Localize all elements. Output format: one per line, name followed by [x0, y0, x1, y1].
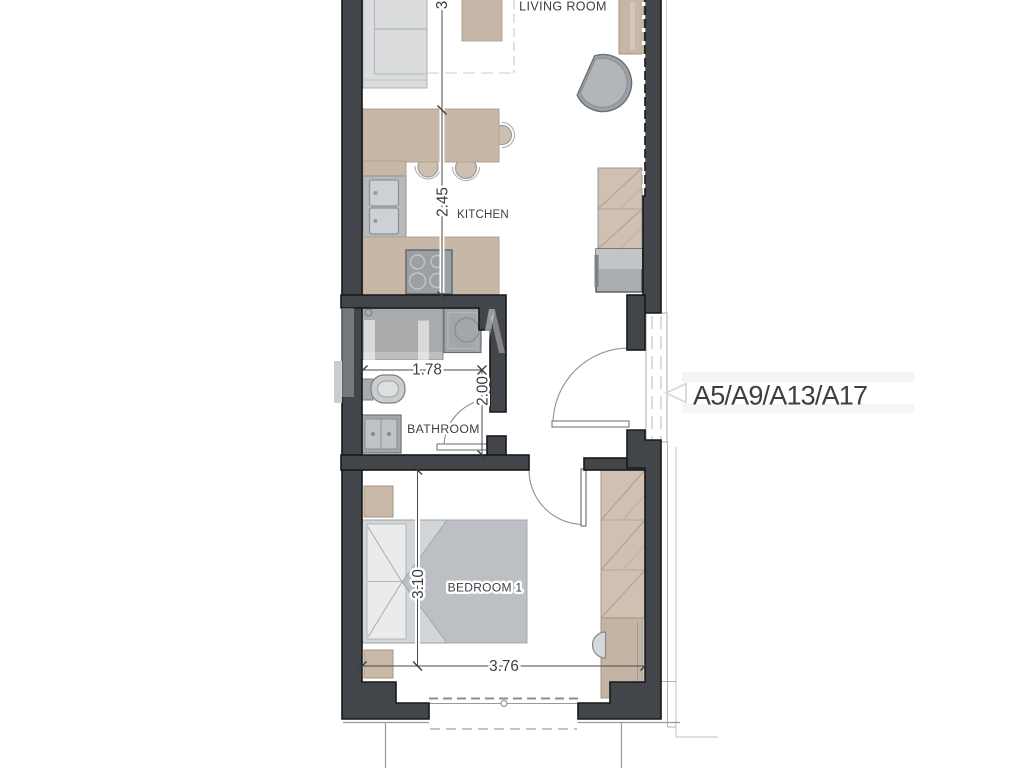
svg-text:1.78: 1.78 — [412, 362, 442, 379]
svg-text:2.45: 2.45 — [434, 187, 451, 217]
svg-text:2.00: 2.00 — [474, 376, 491, 406]
svg-text:BEDROOM 1: BEDROOM 1 — [448, 581, 523, 595]
svg-text:LIVING ROOM: LIVING ROOM — [519, 0, 607, 14]
svg-text:3.76: 3.76 — [489, 658, 519, 675]
svg-text:3.10: 3.10 — [410, 569, 427, 599]
svg-text:KITCHEN: KITCHEN — [457, 209, 509, 221]
svg-text:BATHROOM: BATHROOM — [407, 422, 480, 436]
svg-text:3: 3 — [434, 1, 451, 10]
svg-text:A5/A9/A13/A17: A5/A9/A13/A17 — [693, 381, 867, 411]
